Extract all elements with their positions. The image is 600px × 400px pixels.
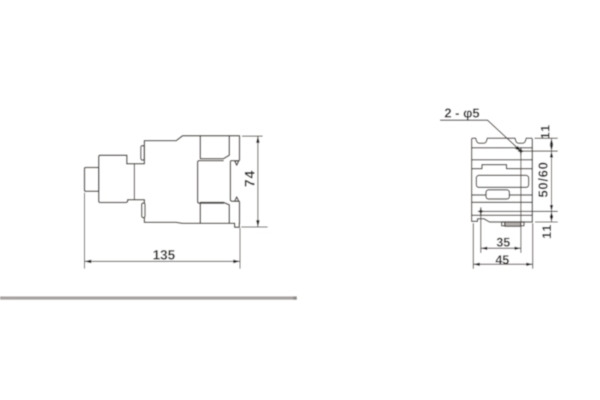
svg-text:35: 35 [496, 235, 510, 249]
svg-text:2 - φ5: 2 - φ5 [444, 106, 479, 121]
svg-text:45: 45 [495, 253, 509, 267]
svg-text:135: 135 [153, 247, 176, 262]
svg-text:11: 11 [538, 124, 552, 139]
svg-text:74: 74 [242, 170, 258, 187]
svg-text:11: 11 [540, 224, 554, 239]
svg-text:50/60: 50/60 [536, 161, 551, 197]
